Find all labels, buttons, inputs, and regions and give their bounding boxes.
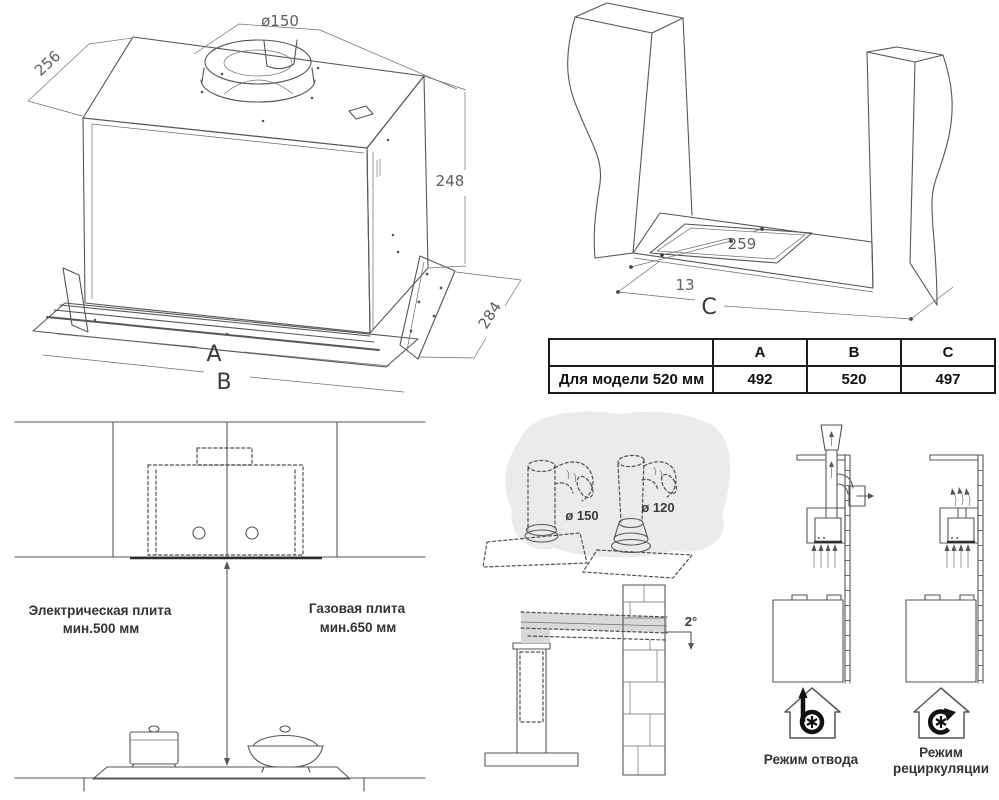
operating-modes-diagram: Режим отвода [745,400,999,800]
gas-stove-label-line2: мин.650 мм [320,620,396,635]
dim-duct-large-label: ø 150 [565,508,598,523]
recirculation-mode-label-line1: Режим [919,745,963,760]
table-value-c: 497 [901,366,995,393]
dim-width-c-label: C [701,295,716,320]
hood-isometric-drawing: ø150 256 248 284 A B [0,0,545,412]
table-col-a: A [713,339,807,366]
wall-cabinet-lines [15,422,425,557]
installation-sheet: ø150 256 248 284 A B [0,0,999,800]
recirculation-mode-lines [906,455,983,683]
recirculation-mode-label-line2: рециркуляции [893,761,989,776]
exhaust-mode-lines [773,425,874,683]
exhaust-mode-icon [785,687,840,738]
duct-collar-lines [201,40,315,102]
table-value-a: 492 [713,366,807,393]
dim-depth-bottom-label: 284 [474,298,505,332]
hood-bottom-frame-lines [33,256,455,367]
clearance-height-diagram: Электрическая плита мин.500 мм Газовая п… [0,410,460,800]
electric-stove-label-line1: Электрическая плита [29,603,172,618]
dim-width-b-label: B [216,370,231,395]
dim-width-a-label: A [206,342,221,367]
dim-height-label: 248 [436,172,465,190]
dim-edge-offset-label: 13 [675,276,694,294]
table-value-b: 520 [807,366,901,393]
table-row-label: Для модели 520 мм [549,366,713,393]
table-row: Для модели 520 мм 492 520 497 [549,366,995,393]
table-corner-cell [549,339,713,366]
cutout-dimension-lines [616,227,953,321]
exhaust-mode-label: Режим отвода [764,752,859,767]
duct-connection-diagram: ø 150 ø 120 2° [460,400,745,800]
table-col-b: B [807,339,901,366]
cooktop-lines [15,726,425,791]
dim-duct-small-label: ø 120 [641,500,674,515]
cabinet-cutout-drawing: 259 13 C [545,0,999,335]
slope-angle-label: 2° [685,614,697,629]
dim-diameter-label: ø150 [261,12,299,30]
cabinet-panel-lines [568,3,952,305]
hidden-hood-outline [130,448,322,558]
slope-annotation [665,632,694,650]
dim-depth-top-label: 256 [31,47,64,80]
gas-stove-label-line1: Газовая плита [309,601,406,616]
hood-dimension-lines [28,24,521,392]
table-header-row: A B C [549,339,995,366]
hood-body-lines [83,37,428,333]
wall-duct-run-lines [521,612,667,643]
dim-cutout-depth-label: 259 [728,235,757,253]
height-dimension-line [224,561,230,766]
model-size-table: A B C Для модели 520 мм 492 520 497 [548,338,996,394]
electric-stove-label-line2: мин.500 мм [63,621,139,636]
brick-wall-lines [623,585,665,775]
recirculation-mode-icon [914,688,969,738]
wall-duct-hood-lines [485,643,578,766]
table-col-c: C [901,339,995,366]
